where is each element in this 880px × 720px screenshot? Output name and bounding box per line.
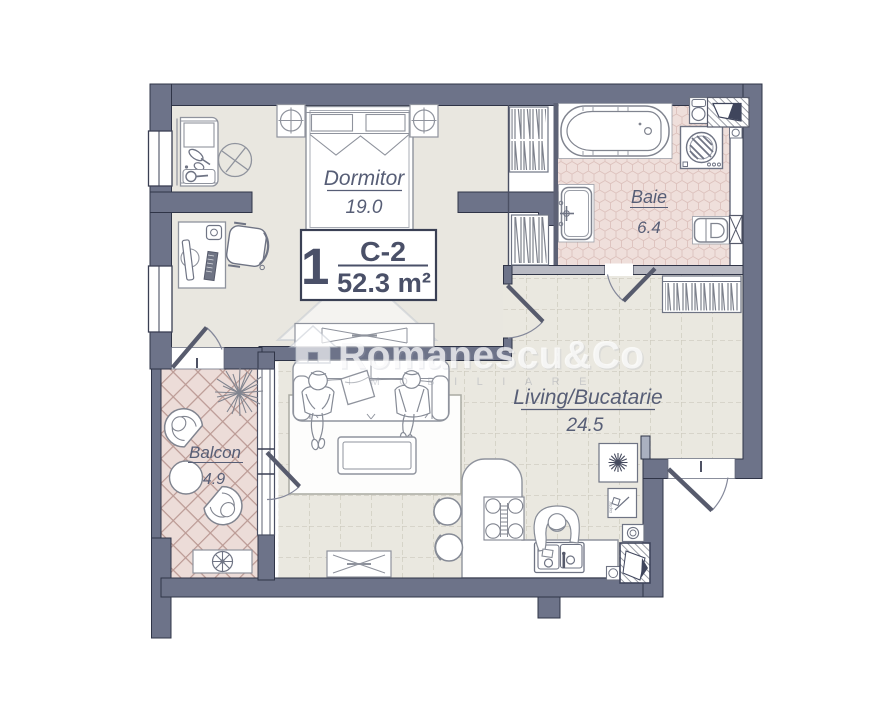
svg-text:Romanescu&Co: Romanescu&Co bbox=[338, 334, 644, 377]
svg-text:Balcon: Balcon bbox=[189, 443, 241, 462]
svg-text:Dormitor: Dormitor bbox=[324, 167, 406, 190]
svg-text:6.4: 6.4 bbox=[637, 218, 661, 237]
svg-text:Living/Bucatarie: Living/Bucatarie bbox=[513, 386, 662, 409]
svg-text:Baie: Baie bbox=[631, 187, 667, 207]
svg-text:IMOBILIARE: IMOBILIARE bbox=[348, 376, 606, 388]
svg-text:19.0: 19.0 bbox=[346, 197, 383, 218]
svg-text:24.5: 24.5 bbox=[566, 415, 604, 436]
svg-text:cuptor: cuptor bbox=[608, 501, 613, 513]
svg-text:C-2: C-2 bbox=[360, 236, 406, 267]
svg-text:4.9: 4.9 bbox=[203, 471, 225, 488]
svg-text:1: 1 bbox=[301, 238, 329, 295]
svg-text:52.3 m²: 52.3 m² bbox=[337, 268, 431, 298]
